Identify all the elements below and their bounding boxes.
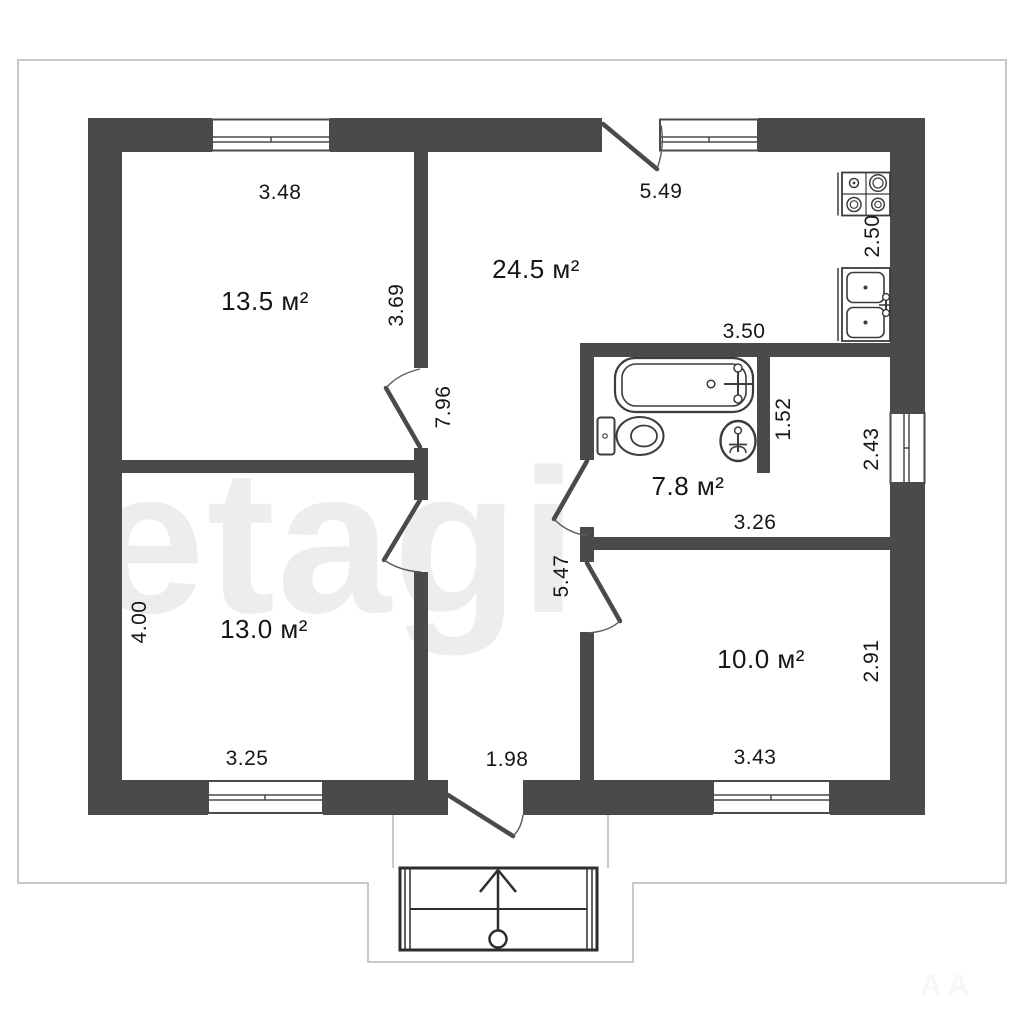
wall-left <box>88 118 122 815</box>
window-hall-right <box>891 413 925 483</box>
door-room100 <box>587 563 620 633</box>
window-room135 <box>212 120 330 151</box>
dim-3-43: 3.43 <box>734 746 777 769</box>
dim-5-49: 5.49 <box>640 180 683 203</box>
wall-hall-mid <box>414 448 428 500</box>
room-label-24-5: 24.5 м² <box>492 254 580 284</box>
wall-hall-lower <box>414 572 428 780</box>
dim-2-43: 2.43 <box>860 428 883 471</box>
wall-bath-bottom <box>580 537 890 550</box>
dim-1-52: 1.52 <box>772 398 795 441</box>
dim-4-00: 4.00 <box>128 601 151 644</box>
dim-2-50: 2.50 <box>861 215 884 258</box>
dim-3-69: 3.69 <box>385 284 408 327</box>
window-room130 <box>208 781 323 813</box>
room-label-10-0: 10.0 м² <box>717 644 805 674</box>
dim-3-48: 3.48 <box>259 181 302 204</box>
bathtub <box>615 358 753 412</box>
dim-5-47: 5.47 <box>550 555 573 598</box>
wall-bath-top <box>580 343 890 357</box>
washbasin <box>721 421 756 461</box>
room-label-13-0: 13.0 м² <box>220 614 308 644</box>
dim-1-98: 1.98 <box>486 748 529 771</box>
dim-3-25: 3.25 <box>226 747 269 770</box>
dim-7-96: 7.96 <box>432 386 455 429</box>
room-label-7-8: 7.8 м² <box>652 471 725 501</box>
kitchen-sink <box>838 268 890 341</box>
toilet <box>598 417 664 455</box>
window-room245 <box>660 120 758 151</box>
stove <box>838 173 890 216</box>
room-label-13-5: 13.5 м² <box>221 286 309 316</box>
window-room100 <box>713 781 830 813</box>
wall-bath-divider <box>757 357 770 473</box>
opening-entrance <box>448 780 523 815</box>
floorplan-svg: etagi A A <box>0 0 1024 1024</box>
wall-hall-upper <box>414 152 428 368</box>
dim-2-91: 2.91 <box>860 640 883 683</box>
dim-3-26: 3.26 <box>734 511 777 534</box>
wall-between-left-rooms <box>120 460 428 473</box>
wall-hall-room10 <box>580 632 594 780</box>
floorplan-page: etagi A A <box>0 0 1024 1024</box>
wall-bath-left-upper <box>580 343 594 460</box>
dim-3-50: 3.50 <box>723 320 766 343</box>
corner-watermark: A A <box>920 969 969 1002</box>
entrance-porch <box>400 868 597 950</box>
